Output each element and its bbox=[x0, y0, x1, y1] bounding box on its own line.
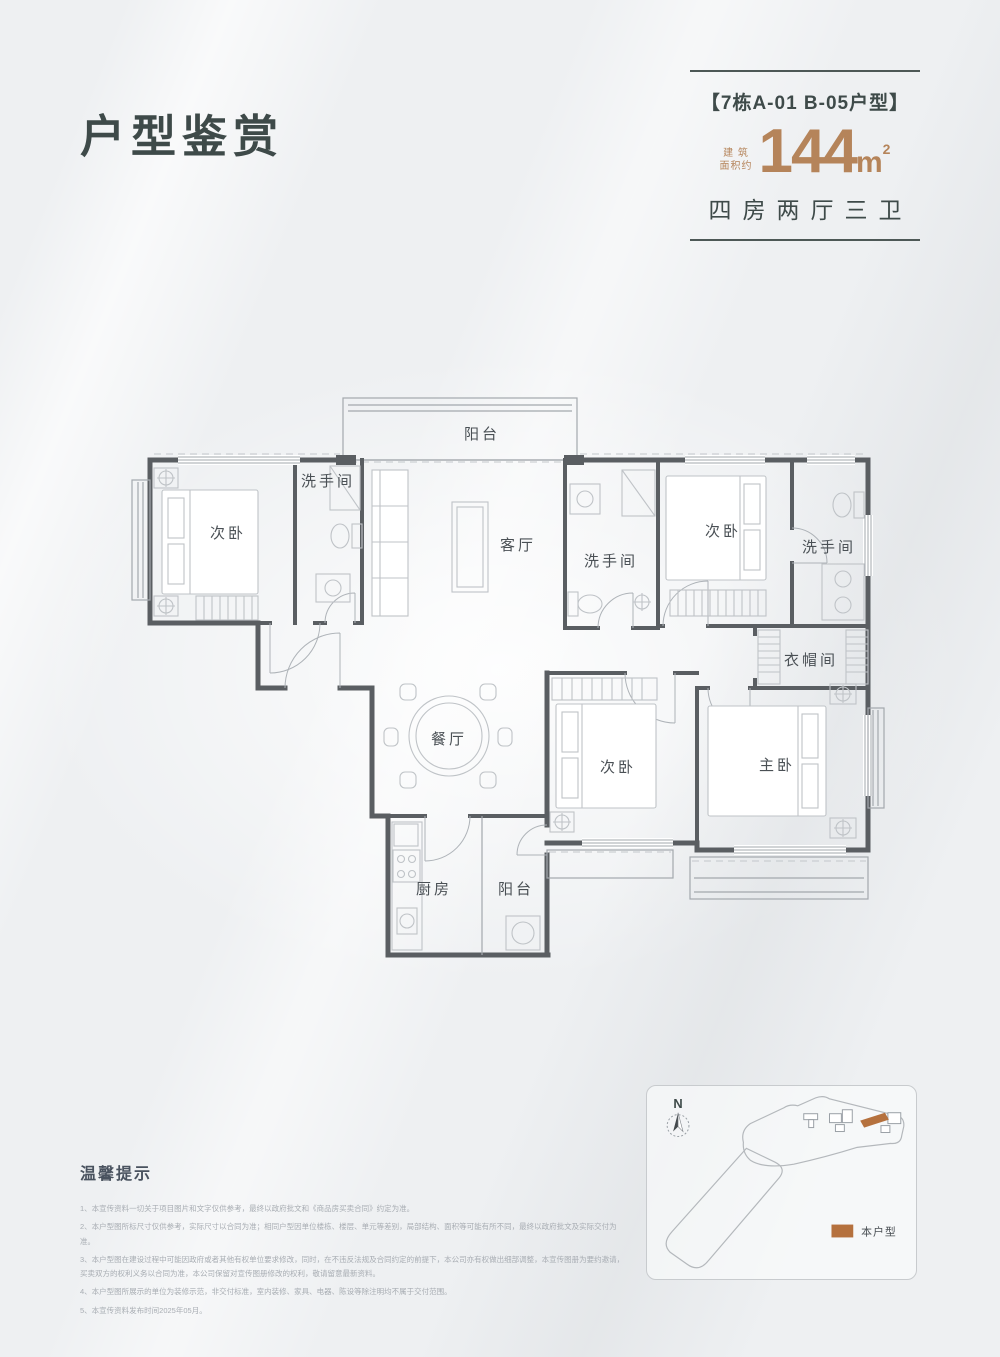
tips-section: 温馨提示 1、本宣传资料一切关于项目图片和文字仅供参考，最终以政府批文和《商品房… bbox=[80, 1160, 630, 1322]
floor-plan: 阳台 次卧 洗手间 客厅 洗手间 次卧 洗手间 衣帽间 餐厅 次卧 主卧 厨房 … bbox=[110, 378, 900, 978]
room-label-balcony-bottom: 阳台 bbox=[498, 881, 534, 898]
compass-icon bbox=[667, 1113, 689, 1137]
tip-item: 5、本宣传资料发布时间2025年05月。 bbox=[80, 1304, 630, 1318]
tip-item: 2、本户型图所标尺寸仅供参考，实际尺寸以合同为准；相同户型因单位楼栋、楼层、单元… bbox=[80, 1220, 630, 1249]
room-label-bath-middle: 洗手间 bbox=[584, 553, 638, 570]
floor-plan-drawing: 阳台 次卧 洗手间 客厅 洗手间 次卧 洗手间 衣帽间 餐厅 次卧 主卧 厨房 … bbox=[110, 378, 900, 978]
room-label-bedroom-bottom: 次卧 bbox=[600, 759, 636, 776]
header-top-rule bbox=[690, 70, 920, 72]
unit-header: 【7栋A-01 B-05户型】 建 筑 面积约 144 m2 四房两厅三卫 bbox=[690, 70, 920, 241]
area-prefix: 建 筑 面积约 bbox=[720, 147, 753, 173]
room-label-bath-top-left: 洗手间 bbox=[301, 473, 355, 490]
room-label-bedroom-top-left: 次卧 bbox=[210, 525, 246, 542]
area-prefix-line1: 建 筑 bbox=[720, 147, 753, 160]
page-title: 户型鉴赏 bbox=[80, 100, 284, 165]
room-label-master: 主卧 bbox=[759, 757, 795, 774]
room-label-cloakroom: 衣帽间 bbox=[784, 652, 838, 669]
tip-item: 4、本户型图所展示的单位为装修示范，非交付标准，室内装修、家具、电器、陈设等除注… bbox=[80, 1285, 630, 1299]
area-prefix-line2: 面积约 bbox=[720, 160, 753, 173]
room-label-kitchen: 厨房 bbox=[416, 881, 452, 898]
area-value: 144 bbox=[759, 121, 856, 183]
tip-item: 3、本户型图在建设过程中可能因政府或者其他有权单位要求修改，同时，在不违反法规及… bbox=[80, 1253, 630, 1282]
area-exponent: 2 bbox=[883, 141, 891, 157]
floorplan-poster: { "theme":{"ink":"#3e4a49","accent":"#b5… bbox=[0, 0, 1000, 1357]
site-map-card: N 本户型 bbox=[646, 1085, 917, 1280]
legend-swatch bbox=[831, 1225, 853, 1238]
unit-tag: 【7栋A-01 B-05户型】 bbox=[690, 88, 920, 115]
layout-summary: 四房两厅三卫 bbox=[690, 191, 920, 225]
room-label-bath-right: 洗手间 bbox=[802, 539, 856, 556]
tip-item: 1、本宣传资料一切关于项目图片和文字仅供参考，最终以政府批文和《商品房买卖合同》… bbox=[80, 1202, 630, 1216]
legend-label: 本户型 bbox=[861, 1224, 897, 1238]
area-row: 建 筑 面积约 144 m2 bbox=[690, 121, 920, 183]
tips-list: 1、本宣传资料一切关于项目图片和文字仅供参考，最终以政府批文和《商品房买卖合同》… bbox=[80, 1202, 630, 1318]
site-map-drawing: N 本户型 bbox=[647, 1086, 916, 1279]
room-label-balcony-top: 阳台 bbox=[464, 426, 500, 443]
room-label-bedroom-top-right: 次卧 bbox=[705, 523, 741, 540]
north-label: N bbox=[673, 1096, 682, 1111]
room-label-dining: 餐厅 bbox=[431, 731, 467, 748]
header-bottom-rule bbox=[690, 239, 920, 241]
tips-heading: 温馨提示 bbox=[80, 1160, 630, 1184]
area-unit: m2 bbox=[856, 141, 890, 180]
room-label-living: 客厅 bbox=[500, 537, 536, 554]
